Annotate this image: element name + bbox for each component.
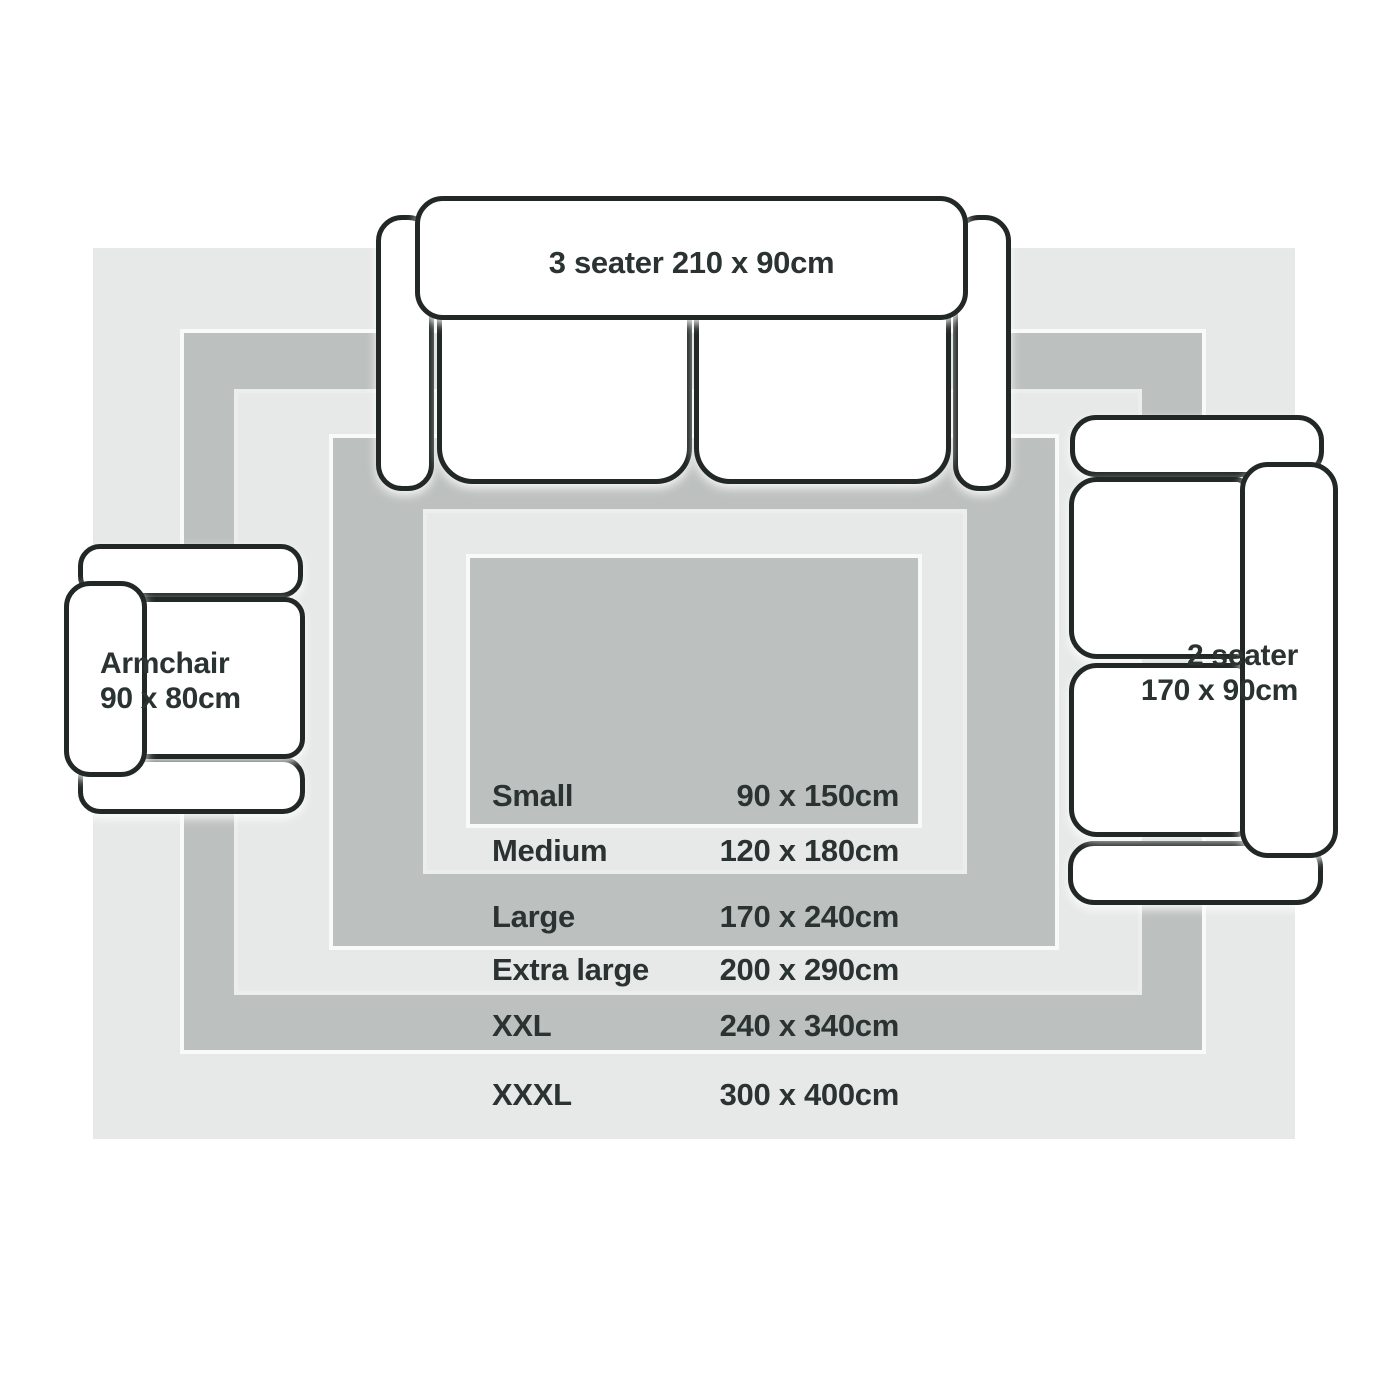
three-seater-right-cushion-icon [694, 298, 951, 484]
size-row-medium: Medium 120 x 180cm [492, 834, 899, 870]
armchair-size: 90 x 80cm [100, 681, 241, 716]
size-dimensions-extra-large: 200 x 290cm [720, 953, 899, 987]
size-row-extra-large: Extra large 200 x 290cm [492, 953, 899, 989]
size-row-small: Small 90 x 150cm [492, 779, 899, 815]
size-row-xxl: XXL 240 x 340cm [492, 1009, 899, 1045]
three-seater-left-cushion-icon [437, 298, 692, 484]
three-seater-label: 3 seater 210 x 90cm [415, 246, 968, 280]
size-label-extra-large: Extra large [492, 953, 649, 987]
size-label-medium: Medium [492, 834, 607, 868]
size-dimensions-large: 170 x 240cm [720, 900, 899, 934]
size-label-small: Small [492, 779, 573, 813]
size-row-large: Large 170 x 240cm [492, 900, 899, 936]
armchair-name: Armchair [100, 646, 241, 681]
size-dimensions-medium: 120 x 180cm [720, 834, 899, 868]
two-seater-size: 170 x 90cm [1048, 673, 1298, 708]
size-label-xxl: XXL [492, 1009, 551, 1043]
size-dimensions-small: 90 x 150cm [737, 779, 899, 813]
size-row-xxxl: XXXL 300 x 400cm [492, 1078, 899, 1114]
rug-size-guide-diagram: Small 90 x 150cm Medium 120 x 180cm Larg… [0, 0, 1389, 1389]
size-dimensions-xxl: 240 x 340cm [720, 1009, 899, 1043]
two-seater-upper-cushion-icon [1069, 477, 1247, 659]
armchair-label: Armchair 90 x 80cm [100, 646, 241, 716]
size-dimensions-xxxl: 300 x 400cm [720, 1078, 899, 1112]
two-seater-name: 2 seater [1048, 638, 1298, 673]
size-label-xxxl: XXXL [492, 1078, 572, 1112]
two-seater-label: 2 seater 170 x 90cm [1048, 638, 1298, 708]
size-label-large: Large [492, 900, 575, 934]
